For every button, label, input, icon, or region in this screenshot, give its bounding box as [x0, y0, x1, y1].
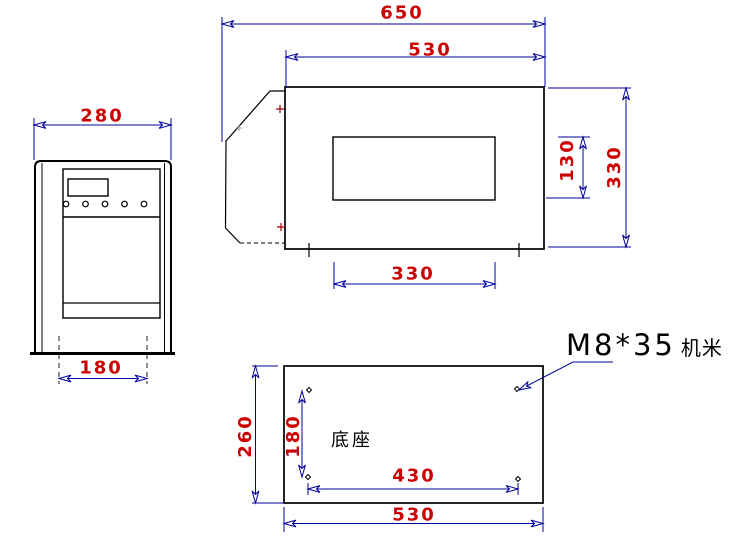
button-icon: [141, 201, 147, 207]
button-icon: [83, 201, 89, 207]
screw-hole-icon: [307, 388, 312, 393]
screw-note: M8*35机米: [566, 331, 723, 360]
front-panel: [63, 169, 160, 318]
dim-label-body-height: 330: [606, 145, 624, 189]
side-bracket: [226, 91, 286, 243]
dim-label-body-width: 530: [408, 41, 452, 59]
screw-type-text: 机米: [681, 336, 723, 360]
screw-cross-marks: [276, 105, 285, 231]
dim-260: [252, 366, 284, 503]
side-window: [333, 137, 495, 200]
dim-label-mount-width: 180: [79, 359, 123, 377]
screw-hole-icon: [516, 477, 521, 482]
dim-label-base-width: 530: [392, 506, 436, 524]
dim-650: [222, 17, 545, 142]
dim-label-overall-width: 650: [380, 4, 424, 22]
screw-hole-icon: [306, 475, 311, 480]
cad-drawing: 280 180 650 530 330 130 330 260 180 430 …: [0, 0, 730, 538]
button-icon: [102, 201, 108, 207]
dim-label-hole-pitch-depth: 180: [285, 414, 303, 458]
side-body: [285, 87, 544, 249]
dim-label-hole-pitch-width: 430: [392, 467, 436, 485]
screw-hole-icon: [515, 387, 520, 392]
dim-label-base-depth: 260: [237, 414, 255, 458]
button-icon: [122, 201, 128, 207]
control-buttons: [63, 201, 147, 207]
dim-label-window-width: 330: [391, 265, 435, 283]
center-mark: [236, 125, 242, 131]
drawing-linework: [0, 0, 730, 538]
screw-spec-text: M8*35: [566, 328, 676, 362]
side-view: [226, 87, 545, 257]
button-icon: [63, 201, 69, 207]
display-screen: [68, 179, 108, 196]
base-plate-label: 底座: [331, 432, 373, 450]
front-view: [30, 161, 175, 354]
dim-label-window-height: 130: [559, 138, 577, 182]
cabinet-outline: [35, 161, 171, 353]
dim-label-front-width: 280: [80, 107, 124, 125]
